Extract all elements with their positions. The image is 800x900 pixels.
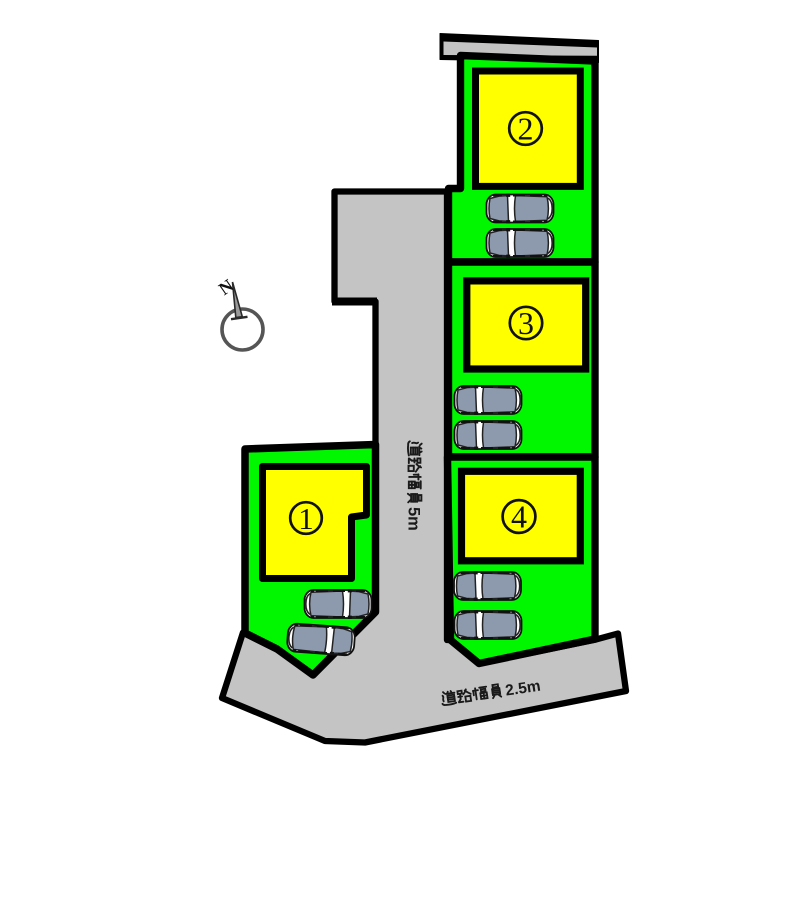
svg-text:5m: 5m — [404, 507, 422, 531]
svg-text:1: 1 — [298, 501, 314, 536]
svg-text:2: 2 — [518, 111, 534, 147]
svg-text:4: 4 — [511, 499, 527, 535]
svg-text:3: 3 — [518, 305, 534, 341]
